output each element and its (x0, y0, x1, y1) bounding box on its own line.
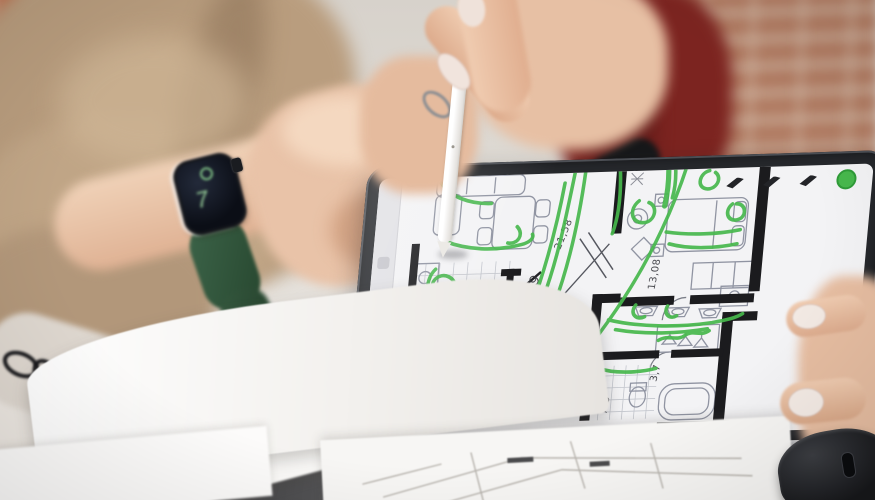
brush-tool-icon (726, 177, 744, 189)
drawing-app-top-toolbar (726, 169, 858, 193)
sink-icons (634, 304, 721, 320)
dimension-label: 13,08 (647, 258, 664, 290)
pen-tool-icon (763, 176, 781, 188)
active-color-swatch (836, 169, 858, 190)
stylus-marking (451, 145, 454, 148)
photo-canvas: 7 (0, 0, 875, 500)
watch-complication-icon (199, 166, 215, 182)
marker-tool-icon (799, 175, 817, 187)
stylus-tip (436, 241, 451, 258)
watch-display-digit: 7 (193, 186, 211, 214)
